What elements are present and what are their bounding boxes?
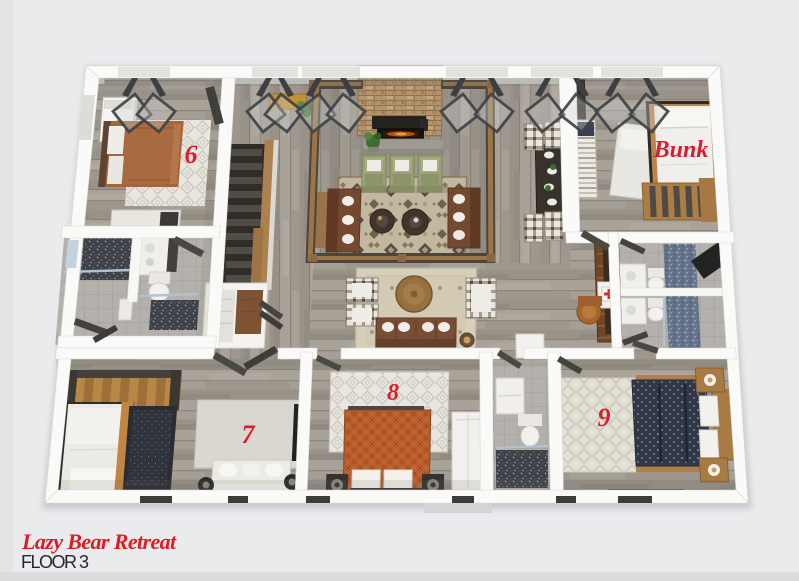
svg-text:8: 8 — [387, 380, 399, 406]
svg-text:6: 6 — [185, 140, 198, 169]
svg-text:7: 7 — [242, 420, 256, 449]
svg-text:9: 9 — [598, 403, 611, 432]
svg-text:Bunk: Bunk — [653, 137, 709, 163]
svg-text:FLOOR 3: FLOOR 3 — [21, 552, 89, 572]
svg-text:Lazy Bear Retreat: Lazy Bear Retreat — [21, 529, 177, 554]
